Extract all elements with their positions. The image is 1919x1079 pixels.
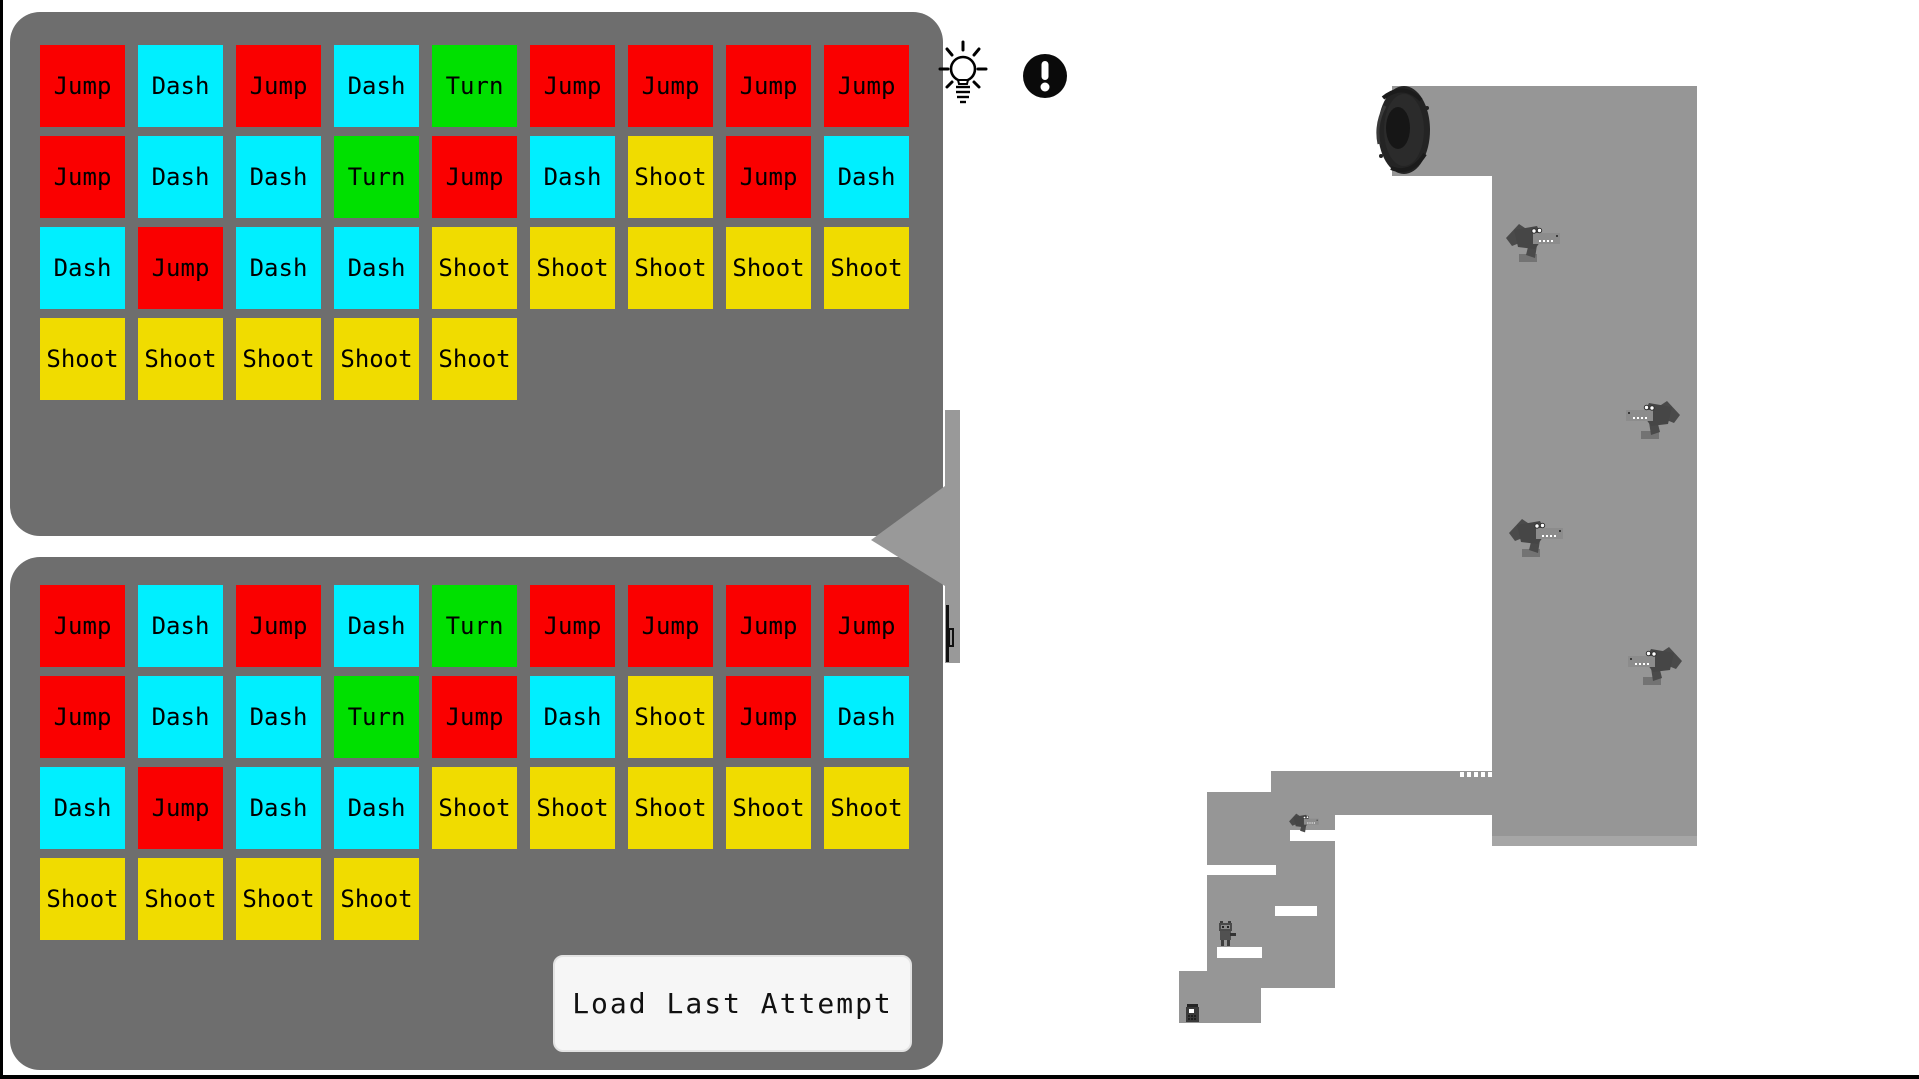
action-tile-dash[interactable]: Dash [138,45,223,127]
robot-player-sprite [1217,921,1236,947]
window-bottom-edge [0,1075,1919,1079]
crocodile-enemy-sprite [1507,516,1563,554]
crocodile-enemy [1507,516,1563,558]
ledge-slot-1 [1206,865,1276,875]
action-tile-dash[interactable]: Dash [40,767,125,849]
action-tile-jump[interactable]: Jump [824,585,909,667]
action-tile-jump[interactable]: Jump [138,227,223,309]
crocodile-enemy [1626,398,1682,440]
map-floor-strip [1492,836,1697,846]
action-tile-turn[interactable]: Turn [432,45,517,127]
serration-dot [1481,772,1485,777]
action-tile-dash[interactable]: Dash [236,136,321,218]
action-tile-jump[interactable]: Jump [40,136,125,218]
pickup-item [1185,1004,1200,1027]
action-tile-shoot[interactable]: Shoot [726,767,811,849]
alert-icon[interactable] [1022,53,1068,99]
pickup-item-sprite [1185,1004,1200,1023]
crocodile-enemy-sprite [1504,221,1560,259]
action-tile-shoot[interactable]: Shoot [40,858,125,940]
action-tile-shoot[interactable]: Shoot [628,227,713,309]
action-tile-jump[interactable]: Jump [726,136,811,218]
action-tile-dash[interactable]: Dash [236,767,321,849]
action-tile-shoot[interactable]: Shoot [726,227,811,309]
serration-dot [1460,772,1464,777]
load-last-attempt-button[interactable]: Load Last Attempt [553,955,912,1052]
map-top-bar [1392,86,1697,176]
action-tile-dash[interactable]: Dash [236,227,321,309]
portal-sprite [1373,84,1433,176]
action-tile-jump[interactable]: Jump [726,585,811,667]
action-tile-shoot[interactable]: Shoot [824,227,909,309]
action-tile-shoot[interactable]: Shoot [138,318,223,400]
action-tile-shoot[interactable]: Shoot [334,318,419,400]
action-tile-jump[interactable]: Jump [432,676,517,758]
action-tile-dash[interactable]: Dash [824,136,909,218]
action-tile-jump[interactable]: Jump [824,45,909,127]
action-tile-shoot[interactable]: Shoot [40,318,125,400]
action-tile-dash[interactable]: Dash [138,136,223,218]
action-tile-shoot[interactable]: Shoot [628,136,713,218]
action-tile-jump[interactable]: Jump [236,585,321,667]
action-tile-dash[interactable]: Dash [530,676,615,758]
action-tile-shoot[interactable]: Shoot [432,227,517,309]
action-tile-dash[interactable]: Dash [138,585,223,667]
crocodile-enemy [1628,644,1684,686]
crocodile-enemy-sprite [1628,644,1684,682]
serration-dot [1488,772,1492,777]
action-tile-dash[interactable]: Dash [334,227,419,309]
action-tile-shoot[interactable]: Shoot [432,767,517,849]
robot-player [1217,921,1236,951]
window-left-edge [0,0,3,1079]
action-tile-jump[interactable]: Jump [40,585,125,667]
action-tile-jump[interactable]: Jump [530,45,615,127]
action-tile-jump[interactable]: Jump [40,676,125,758]
action-tile-dash[interactable]: Dash [824,676,909,758]
action-tile-shoot[interactable]: Shoot [628,676,713,758]
panel-connector-arrow [871,486,945,586]
serration-dot [1474,772,1478,777]
hint-lightbulb-icon[interactable] [938,40,988,108]
action-tile-jump[interactable]: Jump [628,585,713,667]
action-tile-jump[interactable]: Jump [138,767,223,849]
action-tile-shoot[interactable]: Shoot [334,858,419,940]
app-window: JumpDashJumpDashTurnJumpJumpJumpJumpJump… [0,0,1919,1079]
action-tile-turn[interactable]: Turn [334,676,419,758]
serration-dot [1467,772,1471,777]
action-tile-shoot[interactable]: Shoot [138,858,223,940]
action-tile-turn[interactable]: Turn [432,585,517,667]
action-tile-shoot[interactable]: Shoot [824,767,909,849]
action-tile-dash[interactable]: Dash [236,676,321,758]
action-tile-jump[interactable]: Jump [726,45,811,127]
action-tile-dash[interactable]: Dash [40,227,125,309]
ledge-slot-2 [1275,906,1317,916]
action-tile-jump[interactable]: Jump [40,45,125,127]
action-tile-dash[interactable]: Dash [138,676,223,758]
action-tile-shoot[interactable]: Shoot [530,767,615,849]
action-tile-turn[interactable]: Turn [334,136,419,218]
action-tile-jump[interactable]: Jump [432,136,517,218]
crocodile-enemy-sprite [1288,812,1319,833]
crocodile-enemy-sprite [1626,398,1682,436]
action-tile-dash[interactable]: Dash [530,136,615,218]
action-tile-dash[interactable]: Dash [334,585,419,667]
action-tile-shoot[interactable]: Shoot [628,767,713,849]
action-tile-shoot[interactable]: Shoot [432,318,517,400]
scroll-indicator-thumb[interactable] [948,628,954,647]
portal [1373,84,1433,180]
crocodile-enemy [1504,221,1560,263]
action-tile-jump[interactable]: Jump [726,676,811,758]
action-tile-shoot[interactable]: Shoot [236,318,321,400]
action-tile-jump[interactable]: Jump [628,45,713,127]
action-tile-dash[interactable]: Dash [334,767,419,849]
action-tile-shoot[interactable]: Shoot [530,227,615,309]
action-tile-shoot[interactable]: Shoot [236,858,321,940]
action-tile-jump[interactable]: Jump [530,585,615,667]
action-tile-jump[interactable]: Jump [236,45,321,127]
crocodile-enemy [1288,812,1344,854]
action-tile-dash[interactable]: Dash [334,45,419,127]
map-corridor [1492,176,1697,846]
